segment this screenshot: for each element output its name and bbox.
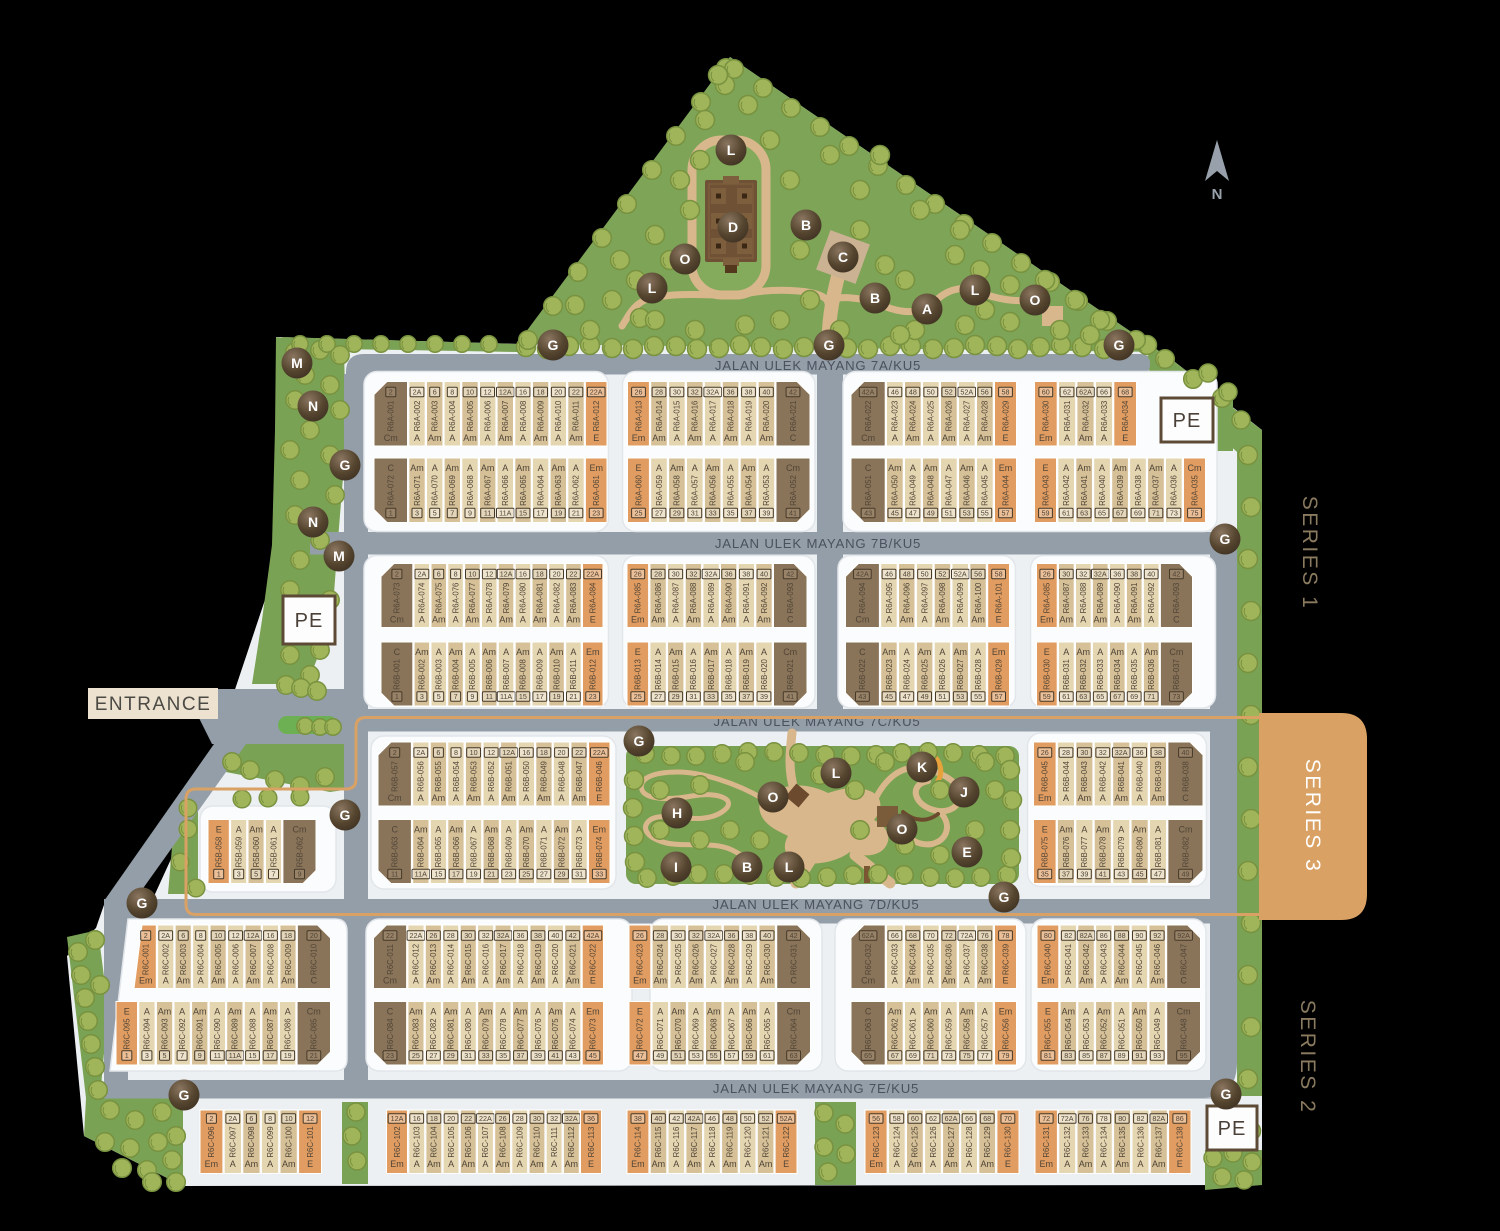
svg-text:71: 71 (1147, 692, 1155, 701)
svg-text:R6C-108: R6C-108 (498, 1126, 507, 1157)
svg-text:R6A-088: R6A-088 (689, 583, 698, 614)
svg-text:Am: Am (1078, 793, 1092, 803)
svg-text:R6B-029: R6B-029 (994, 659, 1003, 690)
svg-text:47: 47 (903, 692, 911, 701)
svg-text:26: 26 (1041, 748, 1049, 757)
svg-text:9: 9 (298, 870, 302, 879)
svg-text:Am: Am (565, 1159, 579, 1169)
svg-text:32A: 32A (1115, 748, 1128, 757)
svg-text:52A: 52A (960, 388, 973, 397)
svg-text:Am: Am (882, 647, 896, 657)
svg-text:A: A (922, 301, 932, 317)
svg-text:A: A (982, 463, 988, 473)
svg-text:61: 61 (1062, 509, 1070, 518)
svg-text:Em: Em (589, 463, 603, 473)
svg-text:C: C (394, 647, 401, 657)
svg-text:28: 28 (447, 931, 455, 940)
svg-text:A: A (538, 463, 544, 473)
svg-text:A: A (483, 976, 489, 986)
svg-text:2A: 2A (413, 388, 422, 397)
svg-text:R6A-083: R6A-083 (569, 583, 578, 614)
svg-text:A: A (761, 647, 767, 657)
svg-text:52: 52 (938, 570, 946, 579)
svg-text:27: 27 (540, 870, 548, 879)
svg-text:3: 3 (145, 1051, 149, 1060)
svg-text:45: 45 (885, 692, 893, 701)
svg-text:73: 73 (1170, 509, 1178, 518)
svg-text:49: 49 (1182, 870, 1190, 879)
svg-text:PE: PE (1218, 1118, 1247, 1140)
svg-text:Am: Am (1062, 1007, 1076, 1017)
svg-text:41: 41 (551, 1051, 559, 1060)
svg-text:R6C-049: R6C-049 (1153, 1018, 1162, 1049)
svg-text:16: 16 (519, 570, 527, 579)
svg-text:R6A-009: R6A-009 (536, 401, 545, 432)
svg-text:A: A (1131, 647, 1137, 657)
svg-text:Am: Am (652, 433, 666, 443)
svg-text:15: 15 (519, 509, 527, 518)
svg-text:R6C-135: R6C-135 (1118, 1126, 1127, 1158)
svg-text:A: A (1097, 647, 1103, 657)
svg-text:Am: Am (924, 463, 938, 473)
svg-text:A: A (711, 976, 717, 986)
svg-text:16: 16 (267, 931, 275, 940)
svg-text:M: M (291, 355, 303, 371)
svg-text:C: C (311, 976, 318, 986)
svg-text:5: 5 (433, 509, 437, 518)
svg-text:R6A-075: R6A-075 (435, 582, 444, 613)
svg-text:A: A (541, 825, 547, 835)
svg-text:R6C-133: R6C-133 (1081, 1126, 1090, 1157)
svg-text:R6C-131: R6C-131 (1042, 1126, 1051, 1157)
svg-text:56: 56 (974, 570, 982, 579)
svg-text:A: A (964, 976, 970, 986)
svg-text:26: 26 (635, 388, 643, 397)
svg-text:A: A (1101, 976, 1107, 986)
svg-text:R6C-104: R6C-104 (430, 1126, 439, 1158)
svg-text:R6B-045: R6B-045 (1041, 760, 1050, 791)
svg-text:R6B-073: R6B-073 (575, 837, 584, 868)
svg-text:L: L (648, 280, 657, 296)
svg-text:Am: Am (1060, 615, 1074, 625)
svg-text:Am: Am (971, 615, 985, 625)
svg-text:Cm: Cm (861, 976, 875, 986)
svg-text:A: A (1065, 976, 1071, 986)
svg-text:R5B-058: R5B-058 (214, 837, 223, 868)
svg-text:G: G (1220, 531, 1231, 547)
svg-text:R6C-054: R6C-054 (1064, 1018, 1073, 1050)
svg-text:R6C-007: R6C-007 (249, 944, 258, 975)
svg-text:R6C-132: R6C-132 (1063, 1126, 1072, 1157)
svg-text:67: 67 (1113, 692, 1121, 701)
svg-text:A: A (1154, 1007, 1160, 1017)
svg-text:R6A-037: R6A-037 (1152, 475, 1161, 506)
svg-text:R6C-046: R6C-046 (1153, 944, 1162, 975)
svg-text:R6A-024: R6A-024 (909, 400, 918, 431)
svg-text:Am: Am (514, 1007, 528, 1017)
svg-text:R6A-056: R6A-056 (709, 475, 718, 506)
svg-text:E: E (1042, 463, 1048, 473)
svg-text:Am: Am (1127, 615, 1141, 625)
svg-text:39: 39 (534, 1051, 542, 1060)
svg-text:A: A (693, 1007, 699, 1017)
svg-text:R6B-030: R6B-030 (1043, 658, 1052, 689)
svg-text:20: 20 (447, 1114, 455, 1123)
svg-text:R6B-016: R6B-016 (689, 659, 698, 690)
svg-text:Am: Am (444, 1007, 458, 1017)
svg-text:Cm: Cm (787, 1007, 801, 1017)
svg-text:40: 40 (1182, 748, 1190, 757)
svg-text:Am: Am (467, 793, 481, 803)
svg-text:R6C-073: R6C-073 (589, 1018, 598, 1049)
svg-text:A: A (500, 1007, 506, 1017)
svg-text:R6B-069: R6B-069 (505, 837, 514, 868)
svg-text:56: 56 (872, 1114, 880, 1123)
svg-text:R5B-061: R5B-061 (269, 837, 278, 868)
svg-text:2: 2 (144, 931, 148, 940)
svg-text:Am: Am (516, 647, 530, 657)
svg-text:R6A-067: R6A-067 (483, 475, 492, 506)
svg-text:37: 37 (745, 509, 753, 518)
svg-text:R6C-102: R6C-102 (393, 1126, 402, 1157)
svg-text:5: 5 (437, 692, 441, 701)
svg-text:Am: Am (760, 976, 774, 986)
svg-text:R6C-003: R6C-003 (179, 944, 188, 975)
svg-text:40: 40 (1147, 570, 1155, 579)
svg-text:42A: 42A (587, 931, 600, 940)
svg-text:R6A-011: R6A-011 (572, 401, 581, 431)
svg-text:A: A (436, 647, 442, 657)
svg-text:Am: Am (530, 1159, 544, 1169)
svg-text:Am: Am (1079, 976, 1093, 986)
svg-text:7: 7 (454, 692, 458, 701)
svg-text:86: 86 (1176, 1114, 1184, 1123)
svg-text:82: 82 (1064, 931, 1072, 940)
svg-text:A: A (1063, 647, 1069, 657)
svg-text:58: 58 (995, 570, 1003, 579)
svg-text:R6C-122: R6C-122 (782, 1126, 791, 1157)
svg-text:G: G (340, 807, 351, 823)
svg-text:R6A-055: R6A-055 (726, 474, 735, 505)
svg-text:R6B-025: R6B-025 (920, 658, 929, 689)
svg-text:Am: Am (461, 1159, 475, 1169)
svg-text:A: A (198, 976, 204, 986)
svg-text:Am: Am (757, 615, 771, 625)
svg-text:R6B-071: R6B-071 (540, 837, 549, 868)
svg-text:R6A-092: R6A-092 (760, 583, 769, 614)
svg-text:R6B-047: R6B-047 (575, 761, 584, 792)
svg-text:A: A (465, 1007, 471, 1017)
svg-text:A: A (179, 1007, 185, 1017)
svg-text:R6A-085: R6A-085 (1043, 582, 1052, 613)
svg-text:B: B (870, 290, 880, 306)
svg-text:A: A (946, 1007, 952, 1017)
svg-text:42A: 42A (856, 570, 869, 579)
svg-text:19: 19 (284, 1051, 292, 1060)
svg-text:58: 58 (1002, 388, 1010, 397)
svg-text:A: A (414, 433, 420, 443)
svg-text:Am: Am (707, 1007, 721, 1017)
svg-text:A: A (708, 615, 714, 625)
svg-text:67: 67 (1116, 509, 1124, 518)
svg-text:R6C-089: R6C-089 (231, 1018, 240, 1049)
svg-text:R6C-036: R6C-036 (945, 944, 954, 975)
svg-text:N: N (308, 398, 318, 414)
svg-text:R6C-065: R6C-065 (763, 1018, 772, 1050)
svg-text:R6C-053: R6C-053 (1082, 1018, 1091, 1049)
svg-text:38: 38 (634, 1114, 642, 1123)
svg-text:Am: Am (722, 615, 736, 625)
svg-text:R6A-002: R6A-002 (413, 401, 422, 432)
svg-text:Am: Am (960, 1007, 974, 1017)
svg-text:82A: 82A (1152, 1114, 1165, 1123)
svg-text:R6B-075: R6B-075 (1041, 836, 1050, 867)
svg-text:16: 16 (522, 748, 530, 757)
svg-text:A: A (957, 615, 963, 625)
svg-text:A: A (163, 976, 169, 986)
svg-text:52: 52 (945, 388, 953, 397)
svg-text:A: A (535, 1007, 541, 1017)
svg-text:27: 27 (429, 1051, 437, 1060)
svg-text:65: 65 (864, 1051, 872, 1060)
svg-text:8: 8 (454, 570, 458, 579)
svg-text:R6A-049: R6A-049 (909, 475, 918, 506)
svg-text:R6C-019: R6C-019 (534, 944, 543, 975)
svg-text:A: A (886, 615, 892, 625)
svg-text:G: G (1221, 1086, 1232, 1102)
svg-text:E: E (1002, 433, 1008, 443)
svg-text:R6C-110: R6C-110 (533, 1126, 542, 1157)
svg-text:31: 31 (464, 1051, 472, 1060)
svg-text:Em: Em (586, 1007, 600, 1017)
svg-text:R6B-068: R6B-068 (487, 837, 496, 868)
svg-text:A: A (892, 433, 898, 443)
svg-text:R6A-032: R6A-032 (1081, 401, 1090, 432)
svg-text:R6C-103: R6C-103 (413, 1126, 422, 1157)
svg-text:Am: Am (409, 1007, 423, 1017)
svg-text:R6B-004: R6B-004 (451, 658, 460, 689)
svg-text:R6B-001: R6B-001 (393, 659, 402, 690)
svg-text:R6C-121: R6C-121 (761, 1126, 770, 1157)
svg-text:R6A-001: R6A-001 (387, 401, 396, 432)
svg-text:75: 75 (963, 1051, 971, 1060)
svg-text:15: 15 (249, 1051, 257, 1060)
svg-text:R6B-026: R6B-026 (938, 659, 947, 690)
svg-text:R6B-010: R6B-010 (552, 658, 561, 689)
svg-text:R6A-044: R6A-044 (1001, 474, 1010, 505)
svg-text:Am: Am (742, 463, 756, 473)
svg-text:R6A-062: R6A-062 (572, 475, 581, 506)
svg-text:71: 71 (927, 1051, 935, 1060)
svg-text:Am: Am (415, 647, 429, 657)
svg-text:R6A-077: R6A-077 (468, 583, 477, 614)
svg-text:57: 57 (995, 692, 1003, 701)
svg-text:Am: Am (1094, 615, 1108, 625)
svg-text:R6C-107: R6C-107 (481, 1126, 490, 1157)
svg-text:A: A (1135, 463, 1141, 473)
svg-text:R5B-060: R5B-060 (252, 836, 261, 867)
svg-text:95: 95 (1180, 1051, 1188, 1060)
svg-text:R6B-034: R6B-034 (1113, 658, 1122, 689)
svg-text:Em: Em (139, 976, 153, 986)
svg-text:A: A (554, 615, 560, 625)
svg-text:30: 30 (674, 931, 682, 940)
svg-text:R6A-073: R6A-073 (393, 583, 402, 614)
svg-text:43: 43 (569, 1051, 577, 1060)
svg-text:32A: 32A (1094, 570, 1107, 579)
svg-text:R6A-087: R6A-087 (672, 583, 681, 614)
svg-text:K: K (917, 759, 927, 775)
svg-text:R6C-115: R6C-115 (654, 1126, 663, 1157)
svg-text:6: 6 (437, 570, 441, 579)
svg-text:G: G (634, 733, 645, 749)
svg-text:38: 38 (742, 570, 750, 579)
svg-text:R6C-002: R6C-002 (161, 944, 170, 975)
svg-text:R6C-066: R6C-066 (745, 1018, 754, 1049)
svg-text:62A: 62A (945, 1114, 958, 1123)
svg-text:57: 57 (1002, 509, 1010, 518)
svg-text:2: 2 (393, 748, 397, 757)
svg-text:50: 50 (927, 388, 935, 397)
svg-text:R6C-005: R6C-005 (214, 943, 223, 975)
svg-text:R6B-031: R6B-031 (1062, 659, 1071, 690)
svg-text:Am: Am (740, 647, 754, 657)
svg-text:Cm: Cm (1177, 1007, 1191, 1017)
svg-text:55: 55 (974, 692, 982, 701)
svg-text:22A: 22A (590, 388, 603, 397)
svg-text:36: 36 (587, 1114, 595, 1123)
svg-text:32A: 32A (565, 1114, 578, 1123)
svg-text:11: 11 (391, 870, 398, 879)
svg-text:43: 43 (864, 509, 872, 518)
svg-text:Am: Am (978, 976, 992, 986)
svg-text:Am: Am (211, 976, 225, 986)
svg-text:12A: 12A (502, 748, 515, 757)
svg-text:R6A-080: R6A-080 (519, 582, 528, 613)
svg-text:40: 40 (654, 1114, 662, 1123)
svg-text:42: 42 (672, 1114, 680, 1123)
svg-text:Am: Am (1111, 647, 1125, 657)
svg-text:R5B-059: R5B-059 (234, 837, 243, 868)
svg-text:R6B-008: R6B-008 (519, 659, 528, 690)
svg-text:Am: Am (706, 463, 720, 473)
svg-text:R6A-021: R6A-021 (789, 401, 798, 432)
svg-text:R6C-063: R6C-063 (864, 1018, 873, 1049)
svg-text:R6B-050: R6B-050 (522, 760, 531, 791)
svg-text:R6B-006: R6B-006 (485, 659, 494, 690)
svg-text:C: C (387, 1007, 394, 1017)
svg-text:A: A (502, 463, 508, 473)
svg-text:A: A (430, 1007, 436, 1017)
svg-text:20: 20 (558, 748, 566, 757)
svg-text:R6C-138: R6C-138 (1176, 1126, 1185, 1157)
svg-text:16: 16 (519, 388, 527, 397)
svg-text:R6A-017: R6A-017 (709, 401, 718, 432)
svg-text:R6B-020: R6B-020 (760, 658, 769, 689)
svg-text:6: 6 (433, 388, 437, 397)
svg-text:R6C-090: R6C-090 (213, 1018, 222, 1050)
svg-text:Am: Am (1077, 463, 1091, 473)
svg-text:A: A (214, 1007, 220, 1017)
svg-text:18: 18 (536, 570, 544, 579)
svg-text:C: C (790, 976, 797, 986)
svg-text:78: 78 (1100, 1114, 1108, 1123)
svg-text:69: 69 (909, 1051, 917, 1060)
svg-text:A: A (236, 825, 242, 835)
svg-text:A: A (1171, 463, 1177, 473)
svg-text:12A: 12A (247, 931, 260, 940)
svg-text:26: 26 (499, 1114, 507, 1123)
svg-text:R6B-063: R6B-063 (391, 837, 400, 868)
svg-text:Am: Am (569, 433, 583, 443)
svg-text:R6B-046: R6B-046 (595, 761, 604, 792)
svg-text:Cm: Cm (388, 793, 402, 803)
svg-text:C: C (388, 463, 395, 473)
svg-text:50: 50 (744, 1114, 752, 1123)
svg-text:E: E (1044, 647, 1050, 657)
svg-text:R6C-037: R6C-037 (963, 944, 972, 975)
svg-text:R6C-055: R6C-055 (1044, 1018, 1053, 1050)
svg-text:40: 40 (762, 388, 770, 397)
svg-text:Am: Am (158, 1007, 172, 1017)
svg-text:Am: Am (263, 1007, 277, 1017)
svg-text:R6A-092: R6A-092 (1147, 583, 1156, 614)
svg-text:18: 18 (284, 931, 292, 940)
svg-text:26: 26 (1043, 570, 1051, 579)
svg-text:R6A-099: R6A-099 (956, 583, 965, 614)
svg-text:2A: 2A (161, 931, 170, 940)
svg-text:R6C-085: R6C-085 (310, 1018, 319, 1050)
svg-text:R6A-101: R6A-101 (994, 583, 1003, 614)
svg-text:R6A-093: R6A-093 (1172, 583, 1181, 614)
svg-text:43: 43 (858, 692, 866, 701)
svg-text:3: 3 (420, 692, 424, 701)
svg-text:Em: Em (205, 1159, 219, 1169)
svg-text:41: 41 (786, 692, 794, 701)
svg-text:41: 41 (789, 509, 797, 518)
svg-text:R6C-077: R6C-077 (516, 1018, 525, 1049)
svg-text:R6C-130: R6C-130 (1004, 1126, 1013, 1158)
svg-text:R6C-016: R6C-016 (482, 944, 491, 975)
svg-text:A: A (573, 463, 579, 473)
svg-text:18: 18 (540, 748, 548, 757)
svg-text:R6A-004: R6A-004 (448, 400, 457, 431)
svg-text:R6B-014: R6B-014 (654, 658, 663, 689)
svg-text:R6B-002: R6B-002 (418, 659, 427, 690)
svg-text:35: 35 (727, 509, 735, 518)
svg-text:R6B-017: R6B-017 (707, 659, 716, 690)
svg-text:35: 35 (499, 1051, 507, 1060)
svg-text:38: 38 (1154, 748, 1162, 757)
svg-text:21: 21 (572, 509, 580, 518)
svg-text:R6B-027: R6B-027 (956, 659, 965, 690)
svg-text:E: E (1122, 433, 1128, 443)
svg-text:Am: Am (484, 825, 498, 835)
svg-text:32A: 32A (497, 931, 510, 940)
svg-text:3: 3 (415, 509, 419, 518)
svg-text:59: 59 (1043, 692, 1051, 701)
svg-text:A: A (674, 433, 680, 443)
svg-text:R6B-053: R6B-053 (469, 761, 478, 792)
svg-text:A: A (726, 647, 732, 657)
svg-text:29: 29 (672, 692, 680, 701)
svg-text:Em: Em (1038, 793, 1052, 803)
svg-text:A: A (419, 615, 425, 625)
svg-text:G: G (824, 337, 835, 353)
svg-text:19: 19 (470, 870, 478, 879)
svg-text:A: A (1081, 825, 1087, 835)
svg-text:A: A (267, 976, 273, 986)
